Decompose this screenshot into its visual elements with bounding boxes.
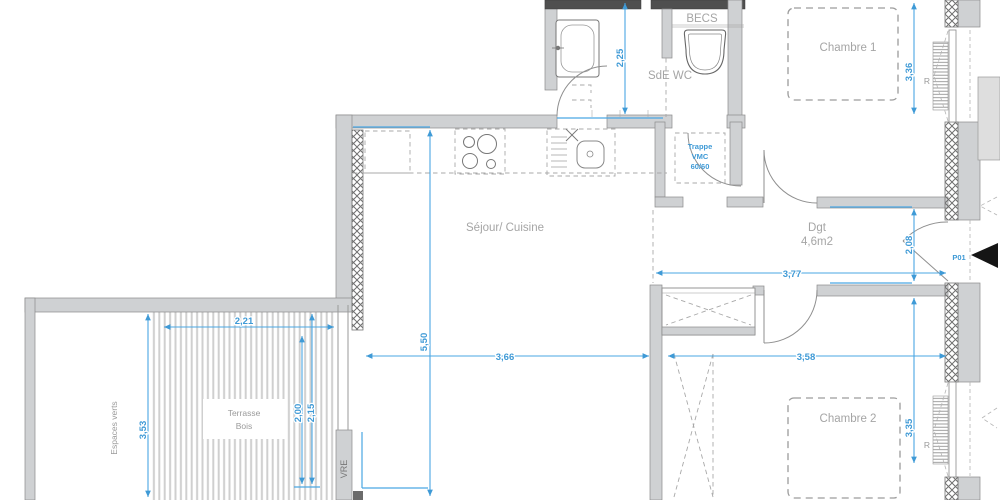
radiator-label-2: R: [924, 440, 930, 450]
room-label-hallway-area: 4,6m2: [801, 236, 833, 248]
room-label-terrace-2: Bois: [236, 421, 253, 431]
dim-label: 3,35: [904, 418, 915, 437]
door-arc-chambre2: [764, 290, 817, 343]
dim-label: 3,77: [783, 269, 802, 280]
wall: [650, 285, 662, 500]
window-frame-end: [353, 491, 363, 500]
exterior-window-swing: [982, 408, 997, 428]
dim-label: 2,15: [306, 403, 317, 422]
room-label-terrace-1: Terrasse: [228, 408, 261, 418]
room-label-green-space: Espaces verts: [109, 401, 119, 454]
wall: [655, 197, 683, 207]
wall: [336, 115, 352, 305]
wall: [25, 298, 35, 500]
room-label-chambre1: Chambre 1: [820, 42, 877, 54]
sink-unit: [547, 129, 615, 176]
burner: [464, 137, 475, 148]
sink-basin: [577, 141, 604, 168]
bed-chambre1: [788, 8, 898, 100]
wall: [545, 0, 641, 9]
room-label-becs: BECS: [686, 13, 718, 25]
room-label-living: Séjour/ Cuisine: [466, 222, 544, 234]
radiator-label-1: R: [924, 76, 930, 86]
hatched-wall: [945, 283, 958, 382]
dim-label: 5,50: [419, 333, 430, 352]
wall: [958, 122, 980, 220]
radiator-chambre1: [933, 42, 948, 110]
burner: [487, 160, 496, 169]
window-chambre2: [949, 382, 956, 477]
wall: [817, 197, 948, 208]
wall: [730, 122, 742, 185]
window-ref-label: VRE: [339, 460, 349, 479]
exterior-pillar: [978, 77, 1000, 160]
dim-label: 3,66: [496, 352, 515, 363]
dim-label: 2,25: [615, 48, 626, 67]
fridge: [365, 131, 410, 173]
wall: [662, 327, 755, 335]
dim-label: 3,53: [138, 421, 149, 440]
wardrobe-swing: [674, 354, 713, 497]
dim-label: 2,00: [293, 404, 304, 423]
wall: [545, 0, 557, 90]
sink-drain: [587, 151, 593, 157]
wall: [662, 9, 672, 58]
bath-rail: [572, 100, 591, 108]
wall: [728, 0, 742, 122]
radiator-chambre2: [933, 396, 948, 464]
dim-label: 2,08: [904, 236, 915, 255]
wall: [958, 477, 980, 500]
cooktop: [455, 129, 505, 174]
wall: [655, 122, 665, 197]
wall: [25, 298, 352, 312]
wall: [958, 283, 980, 382]
hatched-wall: [945, 122, 958, 220]
dim-label: 3,36: [904, 63, 915, 82]
entrance-door-label: P01: [952, 253, 965, 262]
room-label-bathroom: SdE WC: [648, 70, 692, 82]
room-label-hallway: Dgt: [808, 222, 827, 234]
burner: [478, 135, 497, 154]
exterior-window-swing: [980, 197, 997, 215]
dim-label: 2,21: [235, 316, 254, 327]
wall: [817, 285, 948, 296]
door-arc-chambre1: [764, 150, 817, 203]
vmc-label-2: VMC: [692, 152, 709, 161]
vmc-label-1: Trappe: [688, 142, 713, 151]
terrace-label-pad: [203, 399, 286, 439]
wall: [958, 0, 980, 27]
burner: [463, 154, 478, 169]
hatched-wall: [945, 477, 958, 500]
hatched-wall: [945, 0, 958, 27]
vmc-label-3: 60/60: [691, 162, 710, 171]
floor-plan-svg: 2,25 3,36 2,21 3,53 2,00 2,15 5,50 3,66 …: [0, 0, 1000, 500]
wall: [336, 115, 557, 128]
toilet: [684, 30, 725, 74]
room-label-chambre2: Chambre 2: [820, 413, 877, 425]
floor-plan: 2,25 3,36 2,21 3,53 2,00 2,15 5,50 3,66 …: [0, 0, 1000, 500]
dim-label: 3,58: [797, 352, 816, 363]
entrance-arrow: [971, 243, 998, 268]
bath-rail: [572, 85, 591, 93]
wall: [727, 197, 763, 207]
hatched-wall: [352, 130, 363, 330]
window-chambre1: [949, 30, 956, 122]
